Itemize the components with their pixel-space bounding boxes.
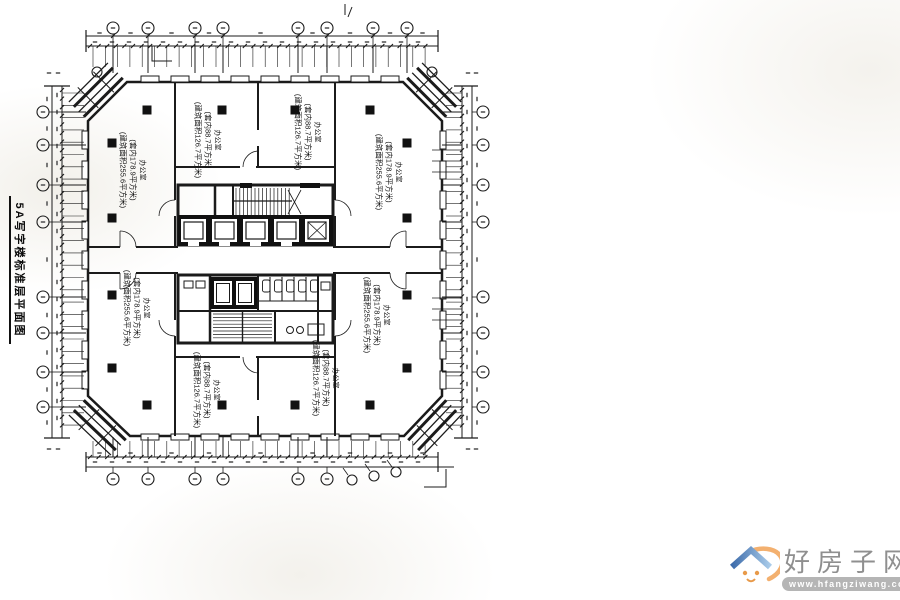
room-area-built: (建筑面积126.7平方米) xyxy=(193,75,203,205)
room-area-inner: (套内178.9平方米) xyxy=(371,250,381,380)
room-label-office-top-mid-left: 办公室 (套内88.7平方米) (建筑面积126.7平方米) xyxy=(193,75,222,205)
room-area-built: (建筑面积255.6平方米) xyxy=(374,107,384,237)
titleblock-rule xyxy=(9,196,11,344)
room-name: 办公室 xyxy=(393,107,402,237)
room-label-office-top-mid-right: 办公室 (套内88.7平方米) (建筑面积126.7平方米) xyxy=(293,67,322,197)
room-area-built: (建筑面积255.6平方米) xyxy=(362,250,372,380)
room-area-inner: (套内88.7平方米) xyxy=(320,313,330,443)
room-label-office-bottom-left: 办公室 (套内178.9平方米) (建筑面积255.6平方米) xyxy=(122,243,151,373)
room-name: 办公室 xyxy=(381,250,390,380)
watermark: 好房子网 www.hfangziwang.com xyxy=(722,536,898,596)
room-area-built: (建筑面积126.7平方米) xyxy=(293,67,303,197)
room-label-office-top-right: 办公室 (套内178.9平方米) (建筑面积255.6平方米) xyxy=(374,107,403,237)
site-name: 好房子网 xyxy=(784,542,896,579)
floorplan-sheet: 5A写字楼标准层平面图 办公室 (套内178.9平方米) (建筑面积255.6平… xyxy=(0,0,900,600)
room-area-built: (建筑面积255.6平方米) xyxy=(118,105,128,235)
room-name: 办公室 xyxy=(141,243,150,373)
room-area-inner: (套内178.9平方米) xyxy=(127,105,137,235)
room-name: 办公室 xyxy=(137,105,146,235)
room-area-inner: (套内88.7平方米) xyxy=(202,75,212,205)
room-name: 办公室 xyxy=(212,75,221,205)
site-url: www.hfangziwang.com xyxy=(782,577,900,591)
room-name: 办公室 xyxy=(211,325,220,455)
room-area-built: (建筑面积255.6平方米) xyxy=(122,243,132,373)
drawing-title: 5A写字楼标准层平面图 xyxy=(12,202,28,337)
room-area-inner: (套内88.7平方米) xyxy=(201,325,211,455)
room-label-office-bottom-mid-left: 办公室 (套内88.7平方米) (建筑面积126.7平方米) xyxy=(192,325,221,455)
room-area-inner: (套内88.7平方米) xyxy=(302,67,312,197)
room-area-inner: (套内178.9平方米) xyxy=(383,107,393,237)
room-label-office-bottom-right: 办公室 (套内178.9平方米) (建筑面积255.6平方米) xyxy=(362,250,391,380)
room-label-office-top-left: 办公室 (套内178.9平方米) (建筑面积255.6平方米) xyxy=(118,105,147,235)
room-name: 办公室 xyxy=(312,67,321,197)
house-logo-icon xyxy=(722,538,780,594)
room-area-built: (建筑面积126.7平方米) xyxy=(311,313,321,443)
room-area-inner: (套内178.9平方米) xyxy=(131,243,141,373)
room-area-built: (建筑面积126.7平方米) xyxy=(192,325,202,455)
room-label-office-bottom-mid-right: 办公室 (套内88.7平方米) (建筑面积126.7平方米) xyxy=(311,313,340,443)
room-name: 办公室 xyxy=(330,313,339,443)
